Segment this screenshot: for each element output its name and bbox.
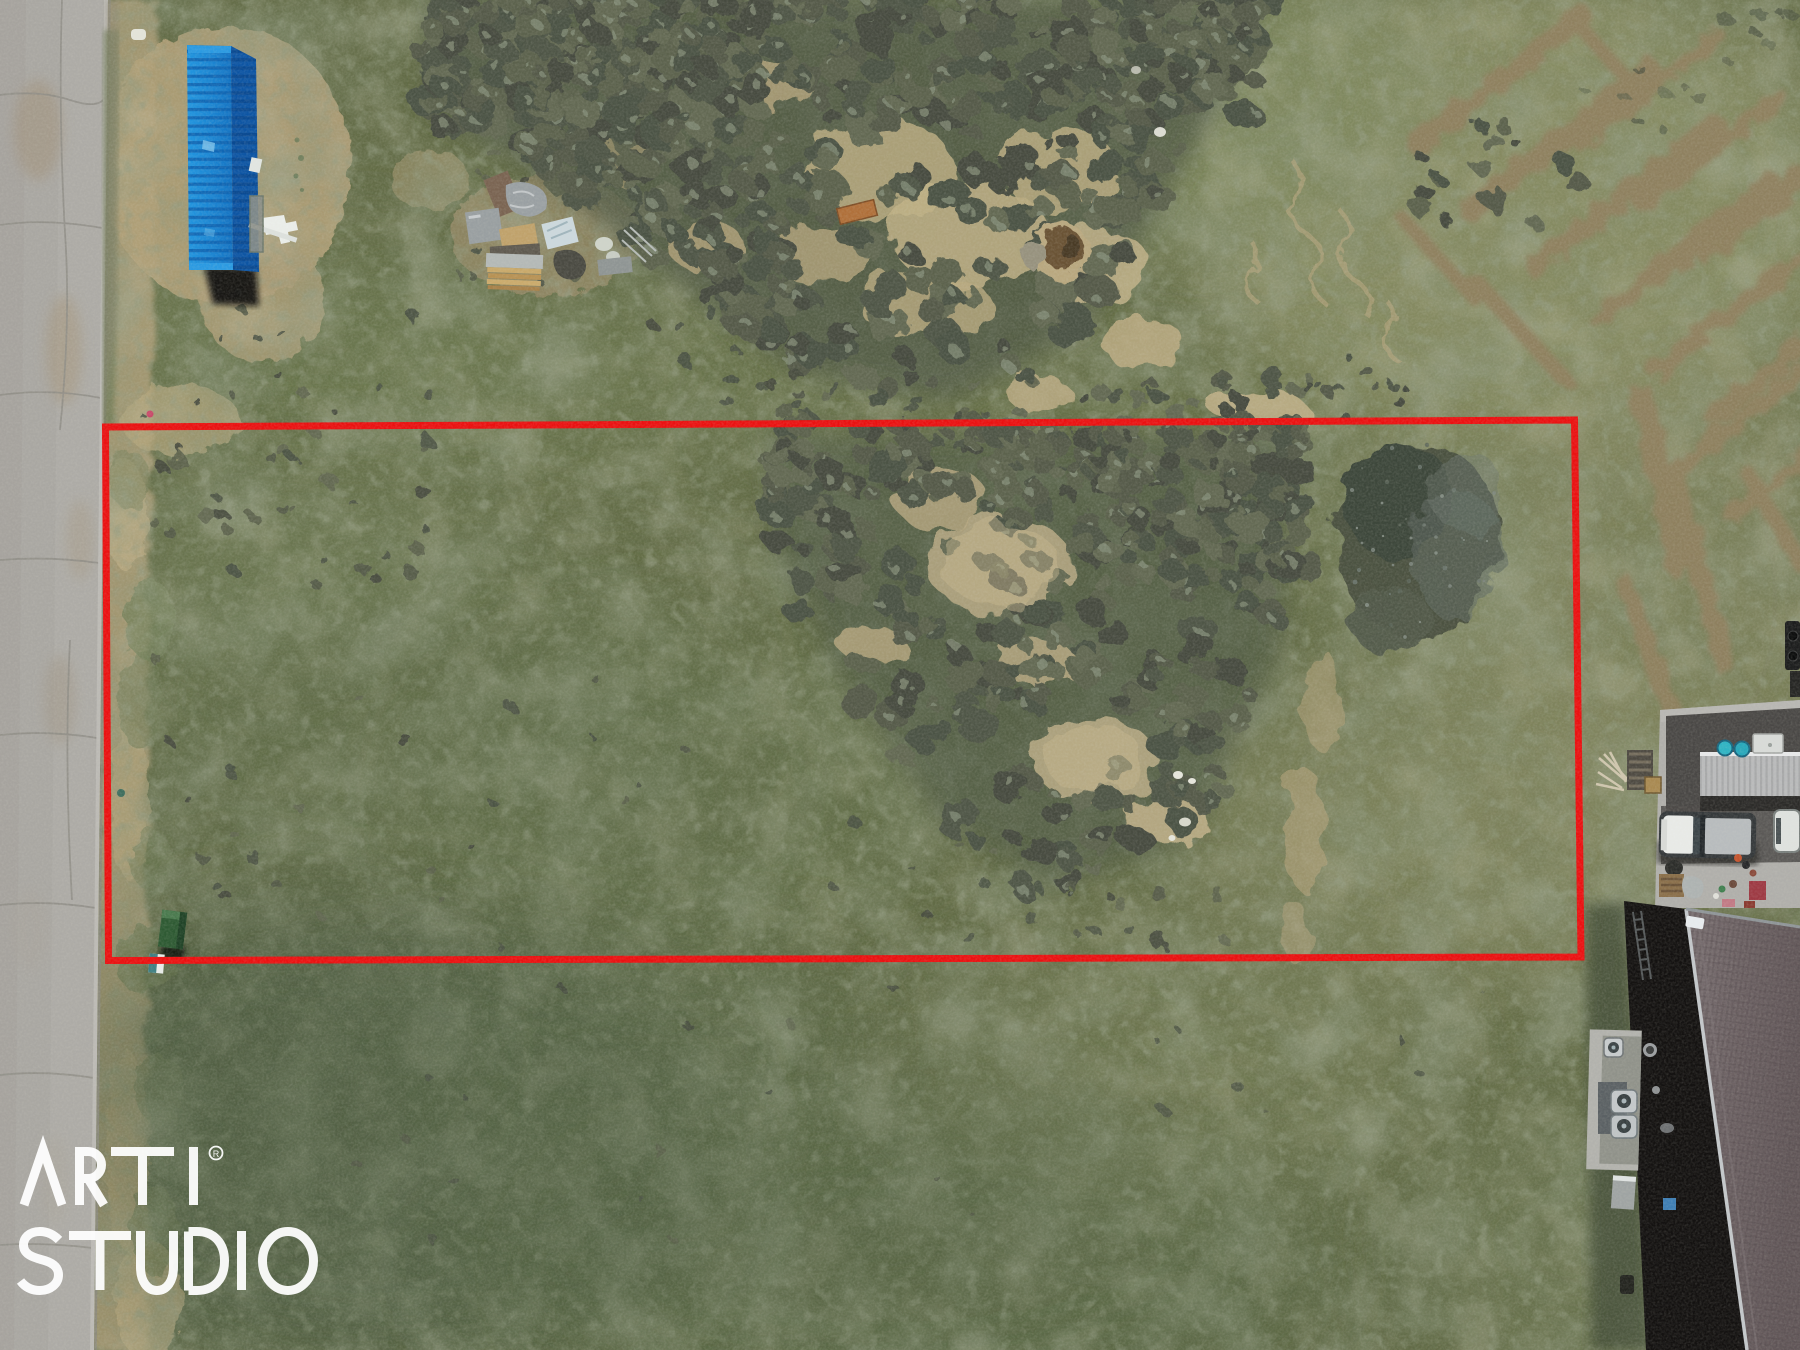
svg-text:R: R <box>213 1149 220 1159</box>
